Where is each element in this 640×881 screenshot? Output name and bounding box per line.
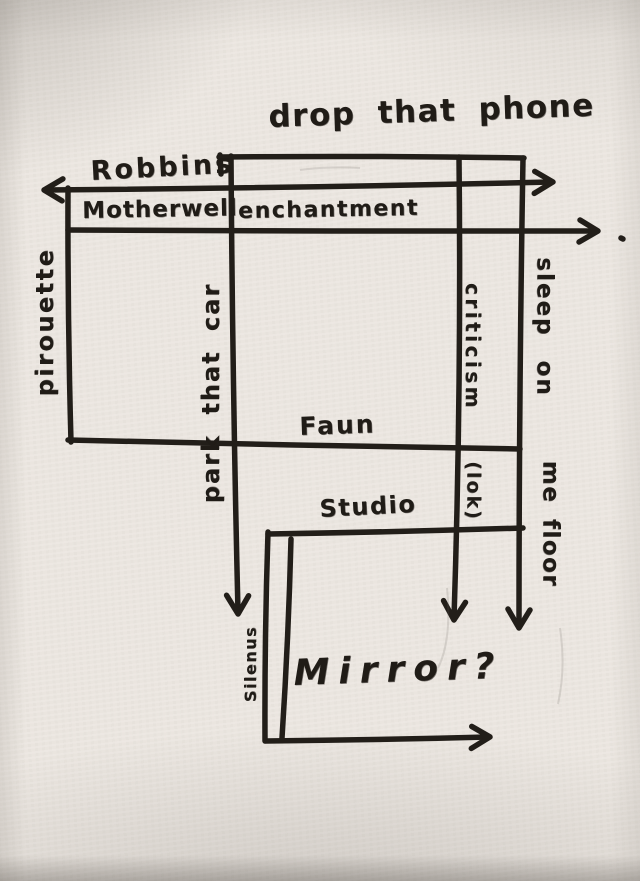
criticism-label: criticism <box>463 283 483 411</box>
studio-label: Studio <box>319 492 417 521</box>
silenus-left-vertical <box>265 532 268 741</box>
park-vertical <box>231 156 238 612</box>
faun-label: Faun <box>299 411 376 439</box>
criticism-vertical <box>454 157 460 618</box>
park-that-car-label: park that car <box>199 283 223 503</box>
enchantment-label: enchantment <box>238 198 419 223</box>
lok-label: (lok) <box>464 461 483 521</box>
mirror-bottom-line <box>266 737 488 741</box>
faun-line <box>68 440 520 449</box>
smudge-3 <box>300 167 360 170</box>
top-line <box>219 156 524 158</box>
sleep-on-label: sleep on <box>533 257 556 396</box>
mirror-left-vertical <box>282 539 291 738</box>
smudge-2 <box>558 628 563 704</box>
motherwell-line <box>68 230 596 231</box>
robbins-label: Robbins <box>90 150 235 184</box>
motherwell-arrow-dot <box>621 238 623 239</box>
sleep-vertical <box>519 158 523 626</box>
mirror-label: Mirror? <box>293 649 504 692</box>
pirouette-label: pirouette <box>33 248 57 397</box>
left-vertical <box>68 188 71 442</box>
studio-line <box>268 528 523 534</box>
silenus-label: Silenus <box>243 626 259 702</box>
motherwell-label: Motherwell <box>82 197 238 223</box>
me-floor-label: me floor <box>539 461 562 587</box>
